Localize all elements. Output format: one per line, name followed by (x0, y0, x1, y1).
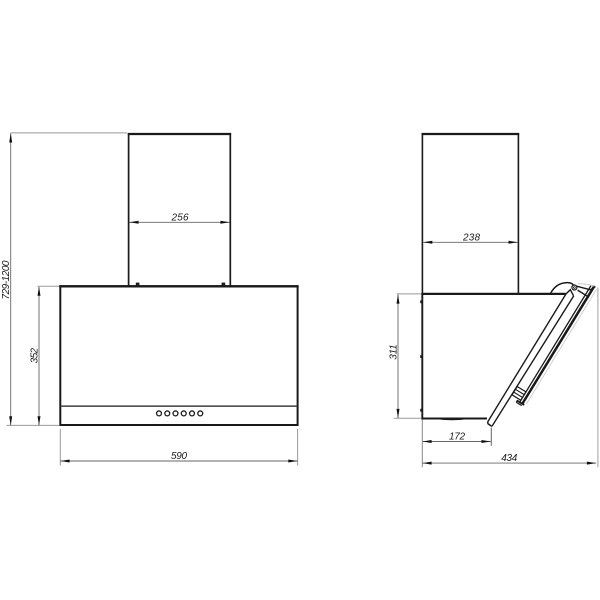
svg-text:352: 352 (30, 347, 41, 363)
svg-text:434: 434 (501, 453, 517, 464)
svg-text:256: 256 (171, 213, 189, 224)
svg-text:172: 172 (449, 432, 465, 443)
svg-text:590: 590 (171, 451, 187, 462)
svg-text:238: 238 (462, 233, 480, 244)
svg-text:311: 311 (389, 344, 400, 360)
svg-text:729-1200: 729-1200 (1, 260, 12, 299)
